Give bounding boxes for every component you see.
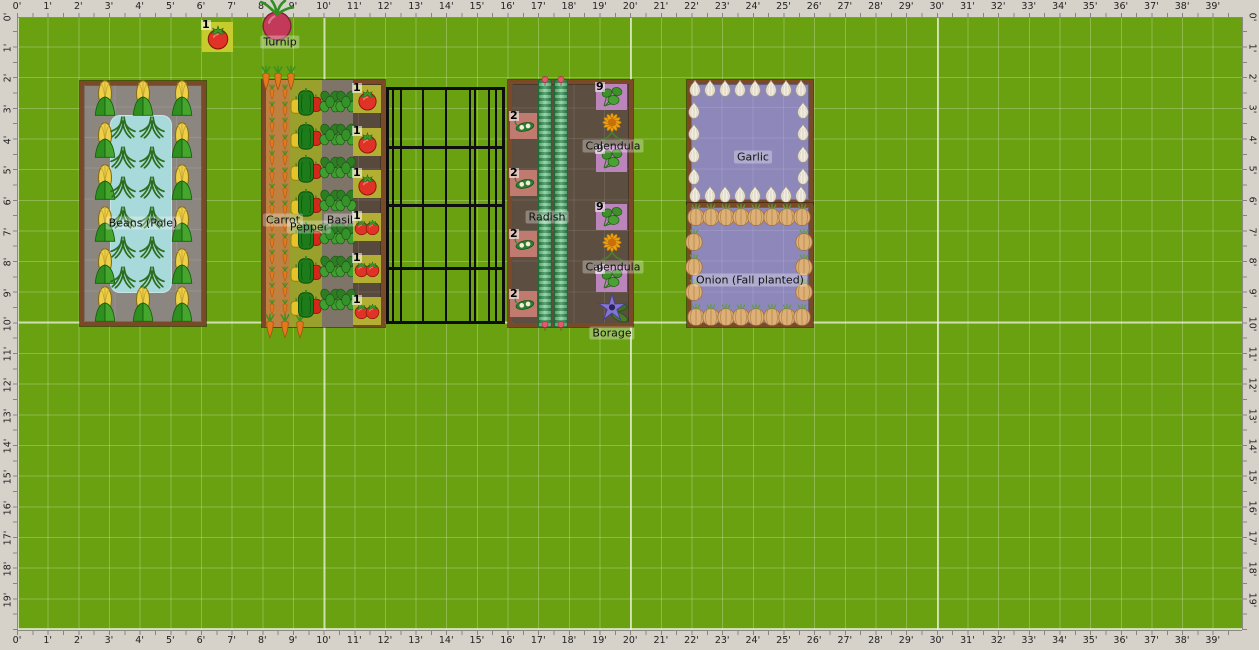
ruler-label: 7' (1247, 227, 1258, 236)
tomato-icon (364, 260, 381, 278)
ruler-label: 8' (3, 258, 14, 267)
beans-icon (110, 264, 136, 290)
corn-plant[interactable] (169, 164, 195, 201)
plant-label: Calendula (583, 261, 644, 274)
ruler-label: 19' (3, 592, 14, 607)
tomato-icon (364, 302, 381, 320)
ruler-label: 18' (3, 562, 14, 577)
ruler-label: 6' (3, 197, 14, 206)
carrot-plant[interactable] (268, 183, 277, 199)
beans-icon (139, 264, 165, 290)
radishtip-icon (557, 321, 565, 332)
beans-icon (139, 144, 165, 170)
ruler-label: 15' (470, 1, 485, 12)
tomato-cell[interactable]: 1 (353, 128, 381, 156)
corn-icon (169, 286, 195, 323)
onion-icon (792, 203, 812, 227)
ruler-label: 15' (1247, 470, 1258, 485)
carrot-icon (263, 313, 277, 339)
garlic-plant[interactable] (793, 185, 809, 204)
garlic-icon (778, 185, 794, 204)
ruler-label: 3' (105, 1, 114, 12)
ruler-label: 35' (1083, 1, 1098, 12)
corn-icon (169, 248, 195, 285)
ruler-label: 17' (3, 531, 14, 546)
beans-plant[interactable] (110, 174, 136, 200)
ruler-label: 14' (439, 635, 454, 646)
count-badge: 9 (595, 82, 605, 92)
plant-label: Borage (589, 327, 634, 340)
ruler-label: 33' (1021, 635, 1036, 646)
radish-row (554, 80, 568, 327)
garlic-plant[interactable] (732, 79, 748, 98)
ruler-label: 31' (960, 1, 975, 12)
ruler-label: 2' (1247, 74, 1258, 83)
garlic-icon (747, 185, 763, 204)
radishtip-icon (557, 76, 565, 87)
tomato-cell[interactable]: 1 (353, 213, 381, 241)
count-badge: 2 (509, 111, 519, 121)
carrot-icon (268, 167, 277, 183)
garlic-icon (778, 79, 794, 98)
ruler-label: 12' (1247, 378, 1258, 393)
ruler-label: 16' (3, 500, 14, 515)
radishtip-plant[interactable] (541, 76, 549, 87)
carrot-icon (268, 183, 277, 199)
borage-plant[interactable] (594, 290, 630, 326)
ruler-label: 18' (562, 635, 577, 646)
ruler-label: 11' (1247, 347, 1258, 362)
ruler-label: 32' (991, 635, 1006, 646)
count-badge: 1 (352, 253, 362, 263)
pod-cell[interactable]: 2 (510, 291, 537, 317)
garden-planner-stage: 0'1'2'3'4'5'6'7'8'9'10'11'12'13'14'15'16… (0, 0, 1259, 649)
ruler-label: 23' (715, 1, 730, 12)
ruler-label: 2' (3, 74, 14, 83)
tomato-cell[interactable]: 1 (353, 255, 381, 283)
garlic-icon (795, 145, 811, 164)
ruler-label: 15' (3, 470, 14, 485)
beans-icon (110, 174, 136, 200)
ruler-label: 32' (991, 1, 1006, 12)
tomato-cell[interactable]: 1 (353, 85, 381, 113)
plant-label: Onion (Fall planted) (693, 274, 807, 287)
ruler-label: 14' (439, 1, 454, 12)
ruler-label: 37' (1144, 1, 1159, 12)
garlic-icon (702, 185, 718, 204)
garlic-icon (686, 145, 702, 164)
ruler-label: 4' (1247, 135, 1258, 144)
corn-icon (92, 286, 118, 323)
borage-icon (594, 290, 630, 326)
count-badge: 2 (509, 229, 519, 239)
ruler-label: 38' (1175, 635, 1190, 646)
onion-icon (794, 228, 814, 252)
ruler-label: 22' (684, 635, 699, 646)
ruler-label: 27' (837, 635, 852, 646)
fence-bar (469, 89, 471, 322)
beans-plant[interactable] (139, 174, 165, 200)
ruler-label: 30' (929, 635, 944, 646)
fence-bar (445, 89, 447, 322)
carrot-icon (268, 150, 277, 166)
pod-cell[interactable]: 2 (510, 170, 537, 196)
ruler-label: 16' (500, 1, 515, 12)
plant-label: Beans (Pole) (106, 217, 181, 230)
radish-row (538, 80, 552, 327)
garlic-plant[interactable] (778, 79, 794, 98)
ruler-label: 2' (74, 1, 83, 12)
radishtip-plant[interactable] (541, 321, 549, 332)
corn-icon (130, 286, 156, 323)
count-badge: 1 (352, 295, 362, 305)
carrot-icon (268, 101, 277, 117)
ruler-label: 18' (562, 1, 577, 12)
beans-plant[interactable] (139, 144, 165, 170)
ruler-label: 12' (3, 378, 14, 393)
plant-label: Calendula (583, 140, 644, 153)
garlic-icon (795, 101, 811, 120)
beans-pole-bed[interactable] (80, 81, 206, 326)
onion-icon (684, 228, 704, 252)
garlic-icon (732, 185, 748, 204)
plant-label: Radish (526, 211, 569, 224)
carrot-icon (268, 134, 277, 150)
ruler-label: 7' (227, 1, 236, 12)
carrot-plant[interactable] (271, 65, 285, 91)
garlic-icon (732, 79, 748, 98)
count-badge: 1 (352, 168, 362, 178)
corn-icon (92, 80, 118, 117)
ruler-label: 13' (1247, 408, 1258, 423)
ruler-label: 21' (654, 1, 669, 12)
ruler-label: 34' (1052, 635, 1067, 646)
count-badge: 9 (595, 202, 605, 212)
garlic-icon (795, 123, 811, 142)
calendula-icon (596, 229, 629, 264)
garlic-plant[interactable] (686, 145, 702, 164)
beans-plant[interactable] (139, 264, 165, 290)
corn-plant[interactable] (169, 286, 195, 323)
beans-plant[interactable] (110, 264, 136, 290)
beans-icon (139, 234, 165, 260)
ruler-label: 30' (929, 1, 944, 12)
ruler-label: 13' (408, 635, 423, 646)
ruler-label: 26' (807, 635, 822, 646)
corn-plant[interactable] (169, 122, 195, 159)
ruler-label: 36' (1113, 1, 1128, 12)
garlic-plant[interactable] (795, 167, 811, 186)
ruler-label: 37' (1144, 635, 1159, 646)
ruler-label: 11' (3, 347, 14, 362)
radishtip-plant[interactable] (557, 76, 565, 87)
garlic-icon (747, 79, 763, 98)
plant-label: Turnip (260, 36, 299, 49)
carrot-plant[interactable] (268, 117, 277, 133)
count-badge: 1 (352, 83, 362, 93)
ruler-label: 3' (1247, 105, 1258, 114)
fence-bar (488, 89, 490, 322)
garlic-plant[interactable] (747, 79, 763, 98)
beans-icon (110, 234, 136, 260)
ruler-label: 10' (3, 316, 14, 331)
corn-plant[interactable] (169, 80, 195, 117)
pod-cell[interactable]: 2 (510, 231, 537, 257)
garlic-plant[interactable] (795, 101, 811, 120)
count-badge: 1 (201, 20, 211, 30)
garlic-plant[interactable] (763, 79, 779, 98)
ruler-label: 3' (105, 635, 114, 646)
ruler-label: 14' (3, 439, 14, 454)
leafy-cell[interactable]: 9 (596, 84, 627, 110)
ruler-label: 38' (1175, 1, 1190, 12)
beans-icon (139, 114, 165, 140)
ruler-label: 34' (1052, 1, 1067, 12)
garlic-plant[interactable] (778, 185, 794, 204)
ruler-label: 39' (1205, 1, 1220, 12)
ruler-label: 13' (408, 1, 423, 12)
carrot-icon (268, 266, 277, 282)
garlic-icon (687, 185, 703, 204)
garlic-icon (686, 101, 702, 120)
ruler-label: 12' (378, 1, 393, 12)
ruler-label: 1' (3, 43, 14, 52)
carrot-plant[interactable] (268, 249, 277, 265)
carrot-icon (268, 117, 277, 133)
ruler-label: 5' (1247, 166, 1258, 175)
ruler-label: 22' (684, 1, 699, 12)
radishtip-plant[interactable] (557, 321, 565, 332)
trellis-fence[interactable] (386, 87, 505, 324)
garlic-icon (702, 79, 718, 98)
ruler-label: 7' (227, 635, 236, 646)
ruler-label: 35' (1083, 635, 1098, 646)
ruler-right: 0'1'2'3'4'5'6'7'8'9'10'11'12'13'14'15'16… (1242, 17, 1259, 630)
garlic-plant[interactable] (795, 123, 811, 142)
ruler-label: 17' (1247, 531, 1258, 546)
ruler-label: 5' (3, 166, 14, 175)
ruler-label: 2' (74, 635, 83, 646)
beans-icon (110, 114, 136, 140)
garlic-icon (793, 79, 809, 98)
ruler-label: 0' (1247, 13, 1258, 22)
garlic-icon (686, 167, 702, 186)
garlic-icon (793, 185, 809, 204)
onion-plant[interactable] (794, 228, 814, 252)
garlic-icon (717, 79, 733, 98)
ruler-label: 4' (135, 635, 144, 646)
garlic-icon (763, 79, 779, 98)
ruler-label: 5' (166, 1, 175, 12)
corn-plant[interactable] (92, 80, 118, 117)
carrot-plant[interactable] (268, 134, 277, 150)
pod-cell[interactable]: 2 (510, 113, 537, 139)
carrot-icon (271, 65, 285, 91)
ruler-label: 20' (623, 1, 638, 12)
garlic-plant[interactable] (717, 79, 733, 98)
garlic-bed[interactable] (687, 80, 813, 204)
garlic-plant[interactable] (686, 167, 702, 186)
calendula-plant[interactable] (596, 109, 629, 144)
ruler-label: 19' (592, 635, 607, 646)
ruler-label: 36' (1113, 635, 1128, 646)
radishtip-icon (541, 76, 549, 87)
corn-plant[interactable] (92, 286, 118, 323)
onion-icon (792, 303, 812, 327)
ruler-label: 10' (1247, 316, 1258, 331)
ruler-label: 33' (1021, 1, 1036, 12)
ruler-label: 9' (3, 289, 14, 298)
radishtip-icon (541, 321, 549, 332)
ruler-label: 13' (3, 408, 14, 423)
garlic-plant[interactable] (687, 79, 703, 98)
ruler-label: 12' (378, 635, 393, 646)
tomato-cell[interactable]: 1 (353, 170, 381, 198)
ruler-label: 26' (807, 1, 822, 12)
ruler-label: 3' (3, 105, 14, 114)
calendula-plant[interactable] (596, 229, 629, 264)
beans-plant[interactable] (110, 114, 136, 140)
ruler-label: 29' (899, 635, 914, 646)
ruler-label: 24' (745, 1, 760, 12)
ruler-left: 0'1'2'3'4'5'6'7'8'9'10'11'12'13'14'15'16… (0, 17, 18, 630)
carrot-plant[interactable] (263, 313, 277, 339)
garlic-plant[interactable] (702, 79, 718, 98)
tomato-cell[interactable]: 1 (202, 22, 233, 52)
garlic-plant[interactable] (717, 185, 733, 204)
ruler-label: 8' (1247, 258, 1258, 267)
garlic-plant[interactable] (686, 101, 702, 120)
garlic-plant[interactable] (793, 79, 809, 98)
ruler-label: 29' (899, 1, 914, 12)
ruler-label: 11' (347, 1, 362, 12)
carrot-plant[interactable] (268, 233, 277, 249)
calendula-icon (596, 109, 629, 144)
garlic-icon (763, 185, 779, 204)
ruler-label: 0' (13, 1, 22, 12)
ruler-label: 20' (623, 635, 638, 646)
fence-bar (392, 89, 394, 322)
count-badge: 2 (509, 168, 519, 178)
carrot-plant[interactable] (268, 266, 277, 282)
garlic-plant[interactable] (686, 123, 702, 142)
ruler-label: 16' (1247, 500, 1258, 515)
carrot-icon (268, 282, 277, 298)
carrot-pepper-basil-tomato-bed[interactable]: 111111 (262, 80, 385, 327)
beans-plant[interactable] (139, 114, 165, 140)
fence-bar (422, 89, 424, 322)
ruler-label: 17' (531, 635, 546, 646)
carrot-icon (268, 233, 277, 249)
ruler-label: 19' (592, 1, 607, 12)
beans-icon (110, 144, 136, 170)
ruler-label: 7' (3, 227, 14, 236)
garlic-plant[interactable] (795, 145, 811, 164)
ruler-label: 9' (1247, 289, 1258, 298)
beans-plant[interactable] (110, 144, 136, 170)
ruler-label: 10' (316, 635, 331, 646)
ruler-label: 14' (1247, 439, 1258, 454)
garlic-icon (686, 123, 702, 142)
ruler-label: 25' (776, 635, 791, 646)
ruler-label: 11' (347, 635, 362, 646)
ruler-label: 27' (837, 1, 852, 12)
ruler-label: 28' (868, 1, 883, 12)
carrot-plant[interactable] (268, 101, 277, 117)
ruler-label: 9' (289, 635, 298, 646)
corn-plant[interactable] (130, 80, 156, 117)
ruler-label: 6' (197, 1, 206, 12)
ruler-label: 5' (166, 635, 175, 646)
fence-bar (474, 89, 476, 322)
ruler-label: 15' (470, 635, 485, 646)
ruler-label: 6' (1247, 197, 1258, 206)
ruler-label: 4' (135, 1, 144, 12)
garlic-plant[interactable] (747, 185, 763, 204)
carrot-plant[interactable] (268, 282, 277, 298)
leafy-cell[interactable]: 9 (596, 204, 627, 230)
ruler-label: 1' (43, 635, 52, 646)
ruler-label: 31' (960, 635, 975, 646)
onion-bed[interactable] (687, 203, 813, 327)
carrot-plant[interactable] (268, 150, 277, 166)
garlic-icon (717, 185, 733, 204)
ruler-label: 16' (500, 635, 515, 646)
garlic-icon (687, 79, 703, 98)
ruler-label: 21' (654, 635, 669, 646)
ruler-label: 39' (1205, 635, 1220, 646)
carrot-icon (268, 249, 277, 265)
fence-bar (400, 89, 402, 322)
onion-plant[interactable] (684, 228, 704, 252)
tomato-icon (364, 218, 381, 236)
corn-icon (169, 80, 195, 117)
ruler-label: 10' (316, 1, 331, 12)
ruler-label: 18' (1247, 562, 1258, 577)
beans-plant[interactable] (139, 234, 165, 260)
beans-plant[interactable] (110, 234, 136, 260)
onion-plant[interactable] (792, 203, 812, 227)
garlic-plant[interactable] (702, 185, 718, 204)
ruler-bottom: 0'1'2'3'4'5'6'7'8'9'10'11'12'13'14'15'16… (17, 630, 1242, 650)
ruler-label: 1' (1247, 43, 1258, 52)
ruler-label: 1' (43, 1, 52, 12)
ruler-label: 4' (3, 135, 14, 144)
beans-icon (139, 174, 165, 200)
corn-plant[interactable] (169, 248, 195, 285)
count-badge: 1 (352, 126, 362, 136)
garlic-plant[interactable] (763, 185, 779, 204)
garlic-plant[interactable] (732, 185, 748, 204)
ruler-label: 24' (745, 635, 760, 646)
tomato-cell[interactable]: 1 (353, 297, 381, 325)
ruler-label: 28' (868, 635, 883, 646)
corn-icon (130, 80, 156, 117)
ruler-label: 19' (1247, 592, 1258, 607)
ruler-label: 17' (531, 1, 546, 12)
corn-icon (169, 122, 195, 159)
plant-label: Garlic (734, 151, 772, 164)
ruler-label: 23' (715, 635, 730, 646)
ruler-label: 0' (13, 635, 22, 646)
corn-plant[interactable] (130, 286, 156, 323)
corn-icon (169, 164, 195, 201)
radish-companion-bed[interactable]: 22229999 (508, 80, 633, 327)
onion-plant[interactable] (792, 303, 812, 327)
carrot-plant[interactable] (268, 167, 277, 183)
garlic-plant[interactable] (687, 185, 703, 204)
ruler-label: 25' (776, 1, 791, 12)
